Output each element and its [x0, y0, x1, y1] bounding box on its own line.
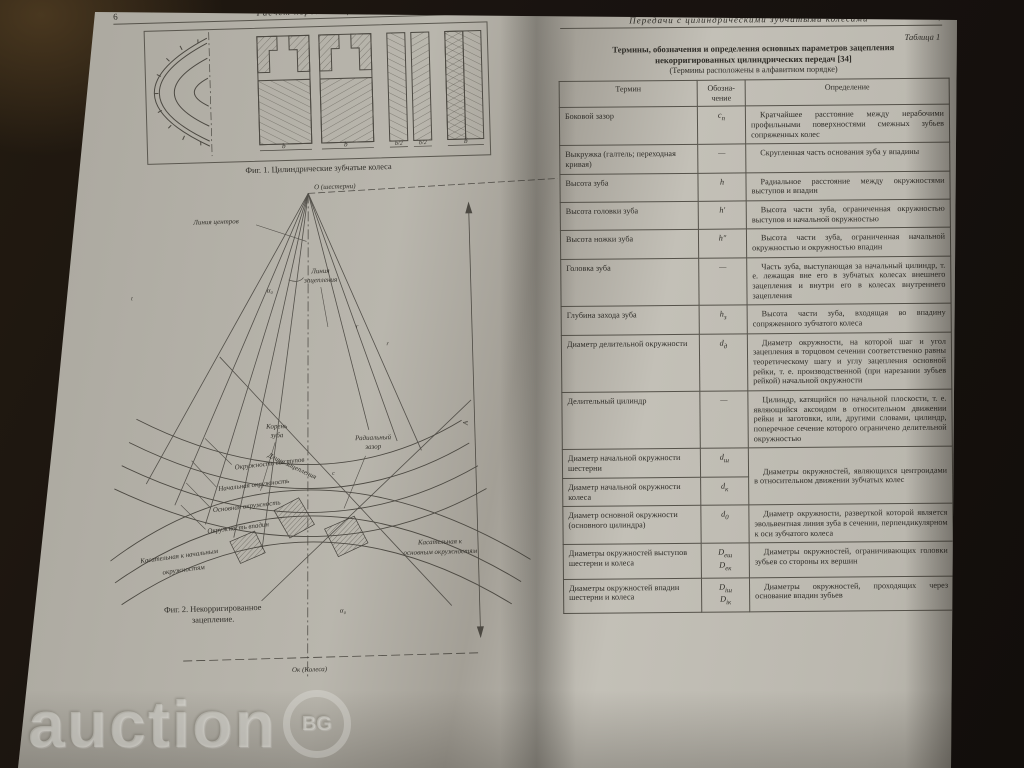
- symbol-sub: iк: [726, 599, 731, 606]
- terms-table: Термин Обозна- чение Определение Боковой…: [559, 78, 955, 614]
- table-row: Высота зуба h Радиальное расстояние межд…: [560, 171, 950, 203]
- term-cell: Диаметры окружностей выступов шестерни и…: [563, 543, 701, 579]
- right-page: Передачи с цилиндрическими зубчатыми кол…: [552, 0, 961, 768]
- book-spine-shadow: [500, 0, 576, 768]
- symbol-cell: hз: [699, 305, 747, 334]
- term-cell: Высота головки зуба: [560, 201, 698, 231]
- right-running-head: Передачи с цилиндрическими зубчатыми кол…: [560, 13, 942, 29]
- term-cell: Диаметр начальной окружности колеса: [563, 477, 701, 507]
- half-gear-front-view: [153, 32, 212, 158]
- wheel-center-label: Ок (Колеса): [292, 665, 328, 674]
- term-cell: Высота ножки зуба: [560, 230, 698, 260]
- term-cell: Диаметр основной окружности (основного ц…: [563, 505, 701, 544]
- symbol-line: Diк: [707, 595, 744, 608]
- symbol: —: [718, 149, 725, 158]
- symbol-cell: h: [698, 173, 746, 202]
- symbol-sub: з: [724, 315, 727, 322]
- left-running-title: Расчет передач зацеплением: [118, 0, 533, 22]
- header-symbol-line2: чение: [700, 93, 743, 103]
- term-cell: Диаметры окружностей впадин шестерни и к…: [563, 578, 701, 614]
- table-row: Диаметр начальной окружности шестерни dш…: [562, 447, 952, 479]
- radial-clearance-label: Радиальный: [354, 433, 392, 442]
- symbol-line: Dеш: [707, 548, 744, 561]
- book-photo: 6 Расчет передач зацеплением: [0, 0, 1024, 768]
- symbol-cell: h″: [698, 229, 746, 258]
- symbol-cell: dш: [700, 448, 748, 477]
- symbol-cell: —: [699, 258, 747, 306]
- watermark: auction BG: [28, 686, 351, 762]
- dimension-lines: [260, 144, 484, 150]
- tangent-pitch-label: окружностям: [162, 563, 206, 577]
- engagement-line-label: Линия: [310, 267, 330, 276]
- gear-circle-arcs: [106, 408, 531, 615]
- radius-label: r: [356, 324, 359, 330]
- symbol-cell: h′: [698, 201, 746, 230]
- symbol: —: [720, 396, 727, 405]
- symbol-sub: еш: [724, 552, 732, 559]
- symbol-cell: d0: [701, 505, 749, 543]
- symbol-cell: —: [698, 144, 746, 173]
- engagement-line-label: зацепления: [303, 276, 337, 285]
- symbol-line: Dек: [707, 560, 744, 573]
- symbol-cell: Diш Diк: [701, 577, 749, 612]
- watermark-badge: BG: [283, 690, 351, 758]
- term-cell: Высота зуба: [560, 173, 698, 203]
- header-term: Термин: [559, 81, 697, 108]
- dim-b2-label: b/2: [419, 140, 427, 146]
- table-title-line3: (Термины расположены в алфавитном порядк…: [567, 64, 941, 76]
- watermark-text: auction: [28, 686, 277, 762]
- symbol-sub: д: [724, 343, 728, 350]
- radial-clearance-label: зазор: [364, 442, 382, 450]
- term-cell: Диаметр начальной окружности шестерни: [562, 449, 700, 479]
- symbol: h: [720, 177, 724, 186]
- table-row: Диаметр основной окружности (основного ц…: [563, 503, 953, 544]
- tooth-root-label: Корень: [265, 422, 287, 431]
- table-row: Диаметр делительной окружности dд Диамет…: [561, 332, 951, 393]
- header-symbol-line1: Обозна-: [700, 84, 743, 94]
- term-cell: Делительный цилиндр: [562, 391, 700, 450]
- tooth-root-label: зуба: [269, 431, 284, 439]
- dim-b2-label: b/2: [395, 141, 403, 147]
- alpha-angle-label: α₀: [267, 286, 274, 294]
- figure1-gear-sections: b b b/2 b/2 b: [145, 22, 488, 161]
- symbol-sub: 0: [725, 514, 728, 521]
- term-cell: Головка зуба: [561, 258, 699, 307]
- symbol-sub: ек: [725, 565, 731, 572]
- table-row: Диаметры окружностей впадин шестерни и к…: [563, 576, 953, 614]
- tangent-base-label: основным окружностям: [403, 547, 477, 557]
- symbol-sub: iш: [725, 587, 732, 594]
- symbol-cell: —: [700, 391, 748, 449]
- symbol-cell: dд: [699, 334, 747, 392]
- pitch-t-label: t: [131, 296, 133, 302]
- dim-A-label: А: [462, 420, 470, 426]
- clearance-c-label: с: [332, 471, 335, 477]
- paired-helical-sections: [387, 32, 432, 141]
- figure2-caption: Фиг. 2. Некорригированное зацепление.: [138, 602, 289, 628]
- pinion-center-label: О (шестерни): [314, 182, 356, 191]
- term-cell: Боковой зазор: [559, 107, 697, 146]
- symbol: h′: [719, 206, 725, 215]
- table-row: Высота ножки зуба h″ Высота части зуба, …: [560, 228, 950, 260]
- symbol-line: Diш: [707, 582, 744, 595]
- table-row: Делительный цилиндр — Цилиндр, катящийся…: [562, 389, 952, 450]
- open-book: 6 Расчет передач зацеплением: [0, 0, 1024, 768]
- line-of-centers-label: Линия центров: [192, 217, 239, 226]
- figure1-frame: b b b/2 b/2 b: [144, 21, 492, 165]
- tangent-pitch-label: Касательная к начальным: [139, 547, 219, 566]
- symbol-cell: Dеш Dек: [701, 543, 749, 578]
- helical-gear-section-2: [319, 34, 374, 143]
- symbol-cell: dк: [701, 477, 749, 506]
- table-row: Головка зуба — Часть зуба, выступающая з…: [561, 256, 951, 307]
- symbol: —: [719, 262, 726, 271]
- table-row: Глубина захода зуба hз Высота части зуба…: [561, 304, 951, 336]
- symbol-sub: ш: [724, 458, 729, 465]
- base-circle-label: Основная окружность: [212, 498, 281, 514]
- radius-label: r: [386, 341, 389, 347]
- right-edge-shadow: [905, 0, 965, 768]
- symbol-cell: cn: [697, 106, 745, 144]
- symbol: h″: [719, 234, 727, 243]
- term-cell: Глубина захода зуба: [561, 306, 699, 336]
- symbol-sub: к: [725, 486, 728, 493]
- table-row: Выкружка (галтель; переходная кривая) — …: [560, 142, 950, 174]
- term-cell: Диаметр делительной окружности: [561, 334, 699, 393]
- spur-gear-section-1: [257, 35, 312, 144]
- term-cell: Выкружка (галтель; переходная кривая): [560, 145, 698, 175]
- left-page: 6 Расчет передач зацеплением: [95, 0, 561, 760]
- alpha-angle-label-bottom: α₀: [340, 606, 347, 614]
- right-running-title: Передачи с цилиндрическими зубчатыми кол…: [560, 13, 938, 26]
- tangent-base-label: Касательная к: [417, 537, 463, 546]
- symbol-sub: n: [722, 116, 725, 123]
- table-row: Высота головки зуба h′ Высота части зуба…: [560, 199, 950, 231]
- herringbone-gear-section: [445, 31, 484, 140]
- table-row: Диаметры окружностей выступов шестерни и…: [563, 541, 953, 579]
- table-header-row: Термин Обозна- чение Определение: [559, 79, 949, 108]
- table-row: Боковой зазор cn Кратчайшее расстояние м…: [559, 104, 949, 145]
- header-symbol: Обозна- чение: [697, 80, 745, 106]
